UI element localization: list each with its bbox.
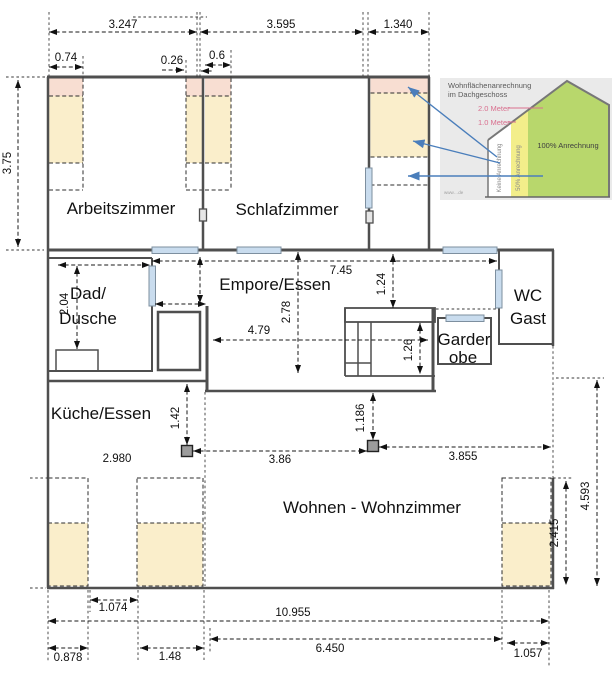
pink-zone-4 <box>371 79 429 94</box>
floorplan-drawing: 3.247 3.595 1.340 0.74 0.26 0.6 3.75 7.4… <box>0 0 615 680</box>
dim-label: 2.415 <box>549 519 561 548</box>
pink-zone-3 <box>205 79 231 97</box>
room-label-schlafzimmer: Schlafzimmer <box>236 200 339 219</box>
yellow-zone-1 <box>49 96 83 163</box>
legend-1m-label: 1.0 Meter <box>478 118 510 127</box>
room-label-empore: Empore/Essen <box>219 275 331 294</box>
dim-node-marker <box>368 441 379 452</box>
yellow-zone-3 <box>205 96 231 163</box>
floorplan-page: 3.247 3.595 1.340 0.74 0.26 0.6 3.75 7.4… <box>0 0 615 680</box>
dim-label: 7.45 <box>330 265 352 277</box>
legend-watermark: www…de <box>444 190 464 195</box>
dim-label: 3.595 <box>267 19 296 31</box>
window-icon <box>443 247 497 254</box>
dim-label: 10.955 <box>275 607 310 619</box>
dim-label: 0.74 <box>55 52 78 64</box>
dim-label: 2.980 <box>103 453 132 465</box>
window-icon <box>446 315 484 322</box>
bottom-dimensions: 1.074 10.955 0.878 1.48 6.450 1.057 <box>30 588 549 668</box>
dim-label: 1.340 <box>384 19 413 31</box>
dim-label: 1.074 <box>99 602 128 614</box>
dim-label: 0.878 <box>54 652 83 664</box>
yellow-zone-2 <box>186 96 202 163</box>
legend-zone-half-label: 50% Anrechnung <box>516 145 522 191</box>
dim-label: 3.86 <box>269 454 291 466</box>
door-icon <box>366 211 373 223</box>
door-icon <box>200 209 207 221</box>
room-label-bad-line2: Dusche <box>59 309 117 328</box>
dim-label: 1.48 <box>159 651 181 663</box>
window-icon <box>366 168 373 208</box>
yellow-zone-kitchen-2 <box>138 523 203 586</box>
stair-void <box>158 312 200 370</box>
dim-label: 4.593 <box>580 482 592 511</box>
room-label-bad-line1: Dad/ <box>70 284 106 303</box>
window-icon <box>152 247 198 254</box>
yellow-zone-4 <box>371 93 429 157</box>
dim-label: 0.6 <box>209 50 225 62</box>
room-label-wc-line1: WC <box>514 286 542 305</box>
bath-fixture <box>56 350 98 371</box>
dim-label: 1.42 <box>170 407 182 429</box>
dim-label: 1.186 <box>355 404 367 433</box>
yellow-zone-kitchen-1 <box>49 523 88 586</box>
dim-label: 0.26 <box>161 55 183 67</box>
dim-label: 1.24 <box>376 272 388 295</box>
dim-node-marker <box>182 446 193 457</box>
staircase <box>345 308 435 391</box>
dim-label: 3.247 <box>109 19 138 31</box>
dim-label: 3.75 <box>2 152 14 174</box>
dim-label: 3.855 <box>449 451 478 463</box>
dim-label: 4.79 <box>248 325 270 337</box>
legend-title-line2: im Dachgeschoss <box>448 90 507 99</box>
dim-label: 1.26 <box>403 339 415 361</box>
bottom-credit-zones <box>48 478 551 586</box>
legend-2m-label: 2.0 Meter <box>478 104 510 113</box>
room-label-wc-line2: Gast <box>510 309 546 328</box>
dim-label: 2.78 <box>281 301 293 323</box>
pink-zone-2 <box>186 79 202 97</box>
room-label-garderobe-line1: Garder <box>438 330 491 349</box>
dim-label: 1.057 <box>514 648 543 660</box>
dim-label: 6.450 <box>316 643 345 655</box>
window-icon <box>149 266 156 306</box>
window-icon <box>496 270 503 308</box>
pink-zone-1 <box>49 79 83 97</box>
right-dimensions: 4.593 2.415 <box>549 378 604 586</box>
room-label-arbeitszimmer: Arbeitszimmer <box>67 199 176 218</box>
legend-zone-full-label: 100% Anrechnung <box>537 141 598 150</box>
room-label-wohnen: Wohnen - Wohnzimmer <box>283 498 461 517</box>
legend-title-line1: Wohnflächenanrechnung <box>448 81 531 90</box>
legend-zone-none-label: Keine Anrechnung <box>497 143 503 192</box>
window-icon <box>237 247 281 254</box>
yellow-zone-living <box>503 523 551 586</box>
legend-panel: Wohnflächenanrechnung im Dachgeschoss 2.… <box>440 78 612 200</box>
room-label-garderobe-line2: obe <box>449 348 477 367</box>
room-label-kueche: Küche/Essen <box>51 404 151 423</box>
